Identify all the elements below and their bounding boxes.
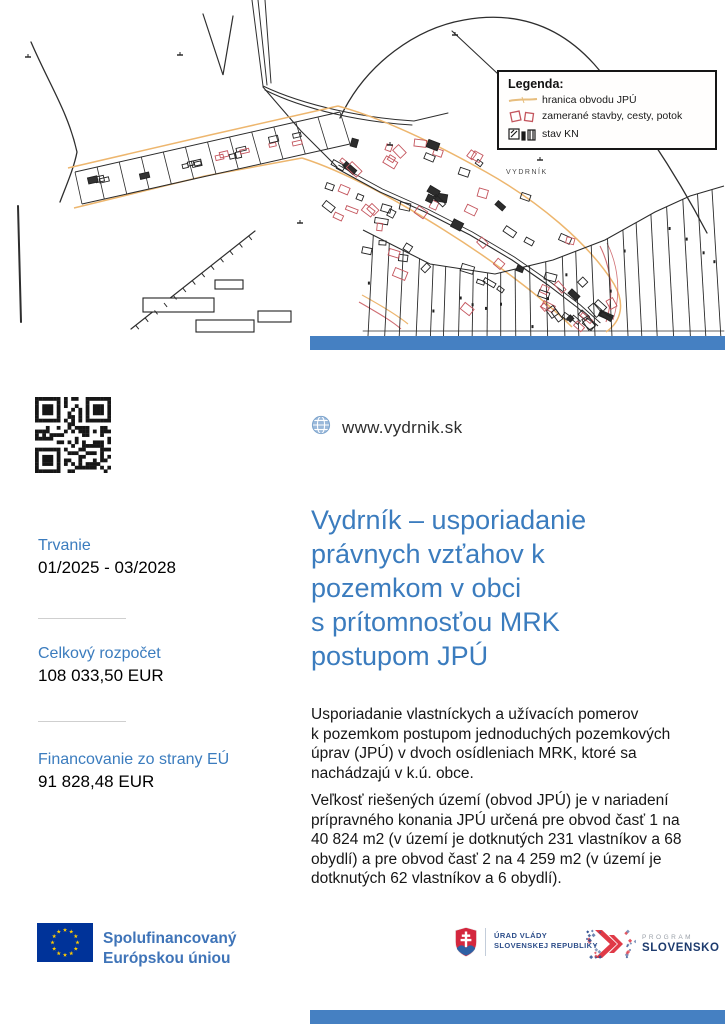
legend-item: hranica obvodu JPÚ [508,94,706,106]
legend-item: stav KN [508,126,706,142]
gov-label-line: ÚRAD VLÁDY [494,931,598,941]
divider [38,721,126,722]
government-office-label: ÚRAD VLÁDY SLOVENSKEJ REPUBLIKY [494,927,598,950]
cadastral-map: Legenda: hranica obvodu JPÚ zamerané sta… [0,0,725,340]
text-line: nachádzajú v k.ú. obce. [311,764,723,784]
title-line: s prítomnosťou MRK [311,605,711,639]
legend-title: Legenda: [508,77,706,91]
qr-code [35,397,111,473]
eu-cofunded-line: Európskou úniou [103,949,237,969]
text-line: obydlí) a pre obvod časť 2 na 4 259 m2 (… [311,850,723,870]
text-line: Veľkosť riešených území (obvod JPÚ) je v… [311,791,723,811]
logo-divider [485,928,486,956]
eu-cofunded-line: Spolufinancovaný [103,929,237,949]
project-details: Veľkosť riešených území (obvod JPÚ) je v… [311,791,723,889]
cadastral-map-drawing [0,0,725,340]
legend-item-label: stav KN [542,128,579,140]
large-buildings [143,280,291,332]
program-line: SLOVENSKO [642,942,720,954]
info-budget: Celkový rozpočet 108 033,50 EUR [38,645,288,686]
text-line: dotknutých 62 vlastníkov a 6 obydlí). [311,869,723,889]
globe-icon [311,415,331,440]
info-label: Trvanie [38,537,288,555]
boundary-line-icon [508,95,538,105]
program-chevron-icon [586,927,636,961]
info-label: Celkový rozpočet [38,645,288,663]
divider [38,618,126,619]
text-line: úprav (JPÚ) v dvoch osídleniach MRK, kto… [311,744,723,764]
website-url: www.vydrnik.sk [342,418,462,438]
legend-item-label: zamerané stavby, cesty, potok [542,110,682,122]
cadastre-state-icon [508,126,538,142]
map-place-label: VYDRNÍK [506,169,548,176]
website-link[interactable]: www.vydrnik.sk [311,415,462,440]
program-slovensko-label: PROGRAM SLOVENSKO [642,934,720,954]
info-value: 91 828,48 EUR [38,772,288,792]
page-title: Vydrník – usporiadanie právnych vzťahov … [311,503,711,673]
divider-bar-top [310,336,725,350]
info-value: 01/2025 - 03/2028 [38,558,288,578]
info-value: 108 033,50 EUR [38,666,288,686]
info-eu-funding: Financovanie zo strany EÚ 91 828,48 EUR [38,751,288,792]
info-duration: Trvanie 01/2025 - 03/2028 [38,537,288,578]
eu-cofunded-label: Spolufinancovaný Európskou úniou [103,929,237,969]
legend-item-label: hranica obvodu JPÚ [542,94,637,106]
text-line: 40 824 m2 (v území je dotknutých 231 vla… [311,830,723,850]
map-legend: Legenda: hranica obvodu JPÚ zamerané sta… [497,70,717,150]
gov-label-line: SLOVENSKEJ REPUBLIKY [494,941,598,951]
survey-marks [25,32,543,329]
divider-bar-bottom [310,1010,725,1024]
legend-item: zamerané stavby, cesty, potok [508,108,706,124]
text-line: Usporiadanie vlastníckych a užívacích po… [311,705,723,725]
text-line: k pozemkom postupom jednoduchých pozemko… [311,725,723,745]
surveyed-objects-icon [508,108,538,124]
title-line: postupom JPÚ [311,639,711,673]
title-line: Vydrník – usporiadanie [311,503,711,537]
title-line: právnych vzťahov k [311,537,711,571]
government-office-logo: ÚRAD VLÁDY SLOVENSKEJ REPUBLIKY [455,927,598,962]
text-line: prípravného konania JPÚ určená pre obvod… [311,811,723,831]
title-line: pozemkom v obci [311,571,711,605]
flyer-page: Legenda: hranica obvodu JPÚ zamerané sta… [0,0,725,1024]
info-label: Financovanie zo strany EÚ [38,751,288,769]
parcel-row [75,112,350,204]
program-line: PROGRAM [642,934,720,941]
slovak-coat-of-arms-icon [455,927,477,962]
program-slovensko-logo: PROGRAM SLOVENSKO [586,927,720,961]
project-description: Usporiadanie vlastníckych a užívacích po… [311,705,723,783]
eu-flag [37,923,93,962]
